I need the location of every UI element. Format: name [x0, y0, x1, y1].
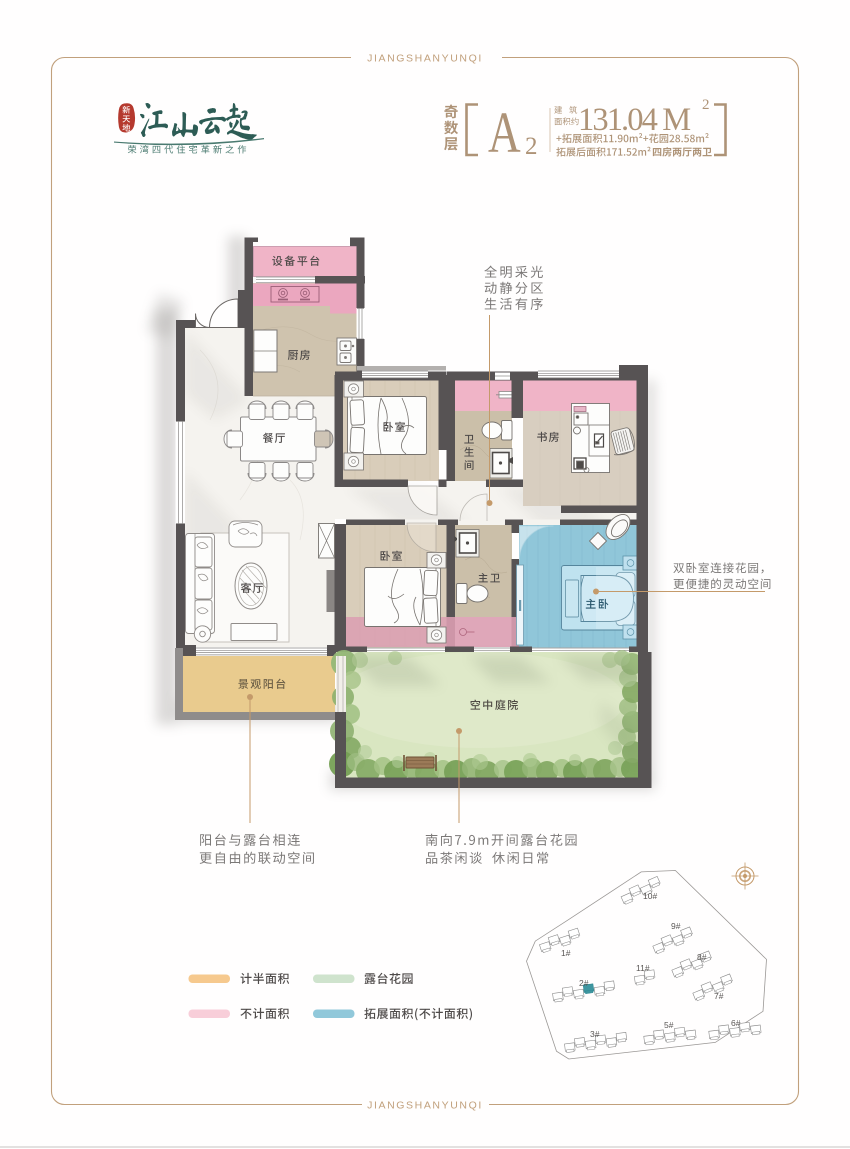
- svg-text:131.04 M: 131.04 M: [578, 102, 690, 138]
- svg-text:A: A: [488, 102, 521, 166]
- svg-text:3#: 3#: [590, 1029, 600, 1039]
- svg-text:2#: 2#: [579, 978, 589, 988]
- svg-text:1#: 1#: [561, 948, 571, 958]
- svg-text:8#: 8#: [697, 952, 707, 962]
- svg-text:JIANGSHANYUNQI: JIANGSHANYUNQI: [367, 53, 483, 65]
- svg-text:10#: 10#: [643, 891, 657, 901]
- svg-text:5#: 5#: [664, 1020, 674, 1030]
- svg-text:6#: 6#: [731, 1018, 741, 1028]
- svg-text:2: 2: [702, 97, 710, 113]
- svg-text:9#: 9#: [671, 921, 681, 931]
- svg-text:2: 2: [525, 133, 538, 160]
- svg-text:JIANGSHANYUNQI: JIANGSHANYUNQI: [367, 1100, 483, 1112]
- svg-text:7#: 7#: [714, 991, 724, 1001]
- svg-text:11#: 11#: [636, 963, 650, 973]
